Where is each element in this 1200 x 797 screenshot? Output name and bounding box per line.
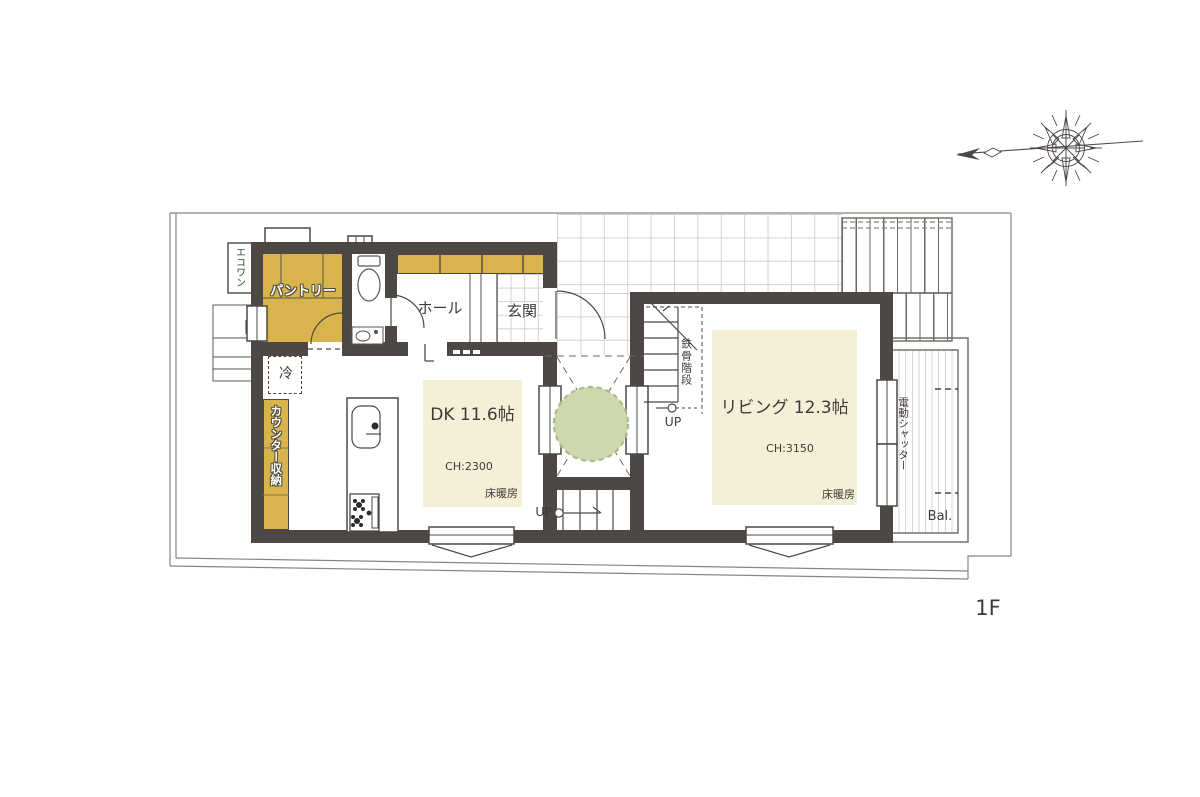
dk-ceiling-height: CH:2300 [423, 461, 515, 474]
kitchen-stove [350, 494, 379, 531]
compass-rose [956, 110, 1143, 186]
kitchen-faucet [372, 423, 379, 430]
floor-label: 1F [968, 596, 1008, 620]
plan-linework [0, 0, 1200, 797]
toilet-fixture [358, 256, 380, 301]
washbasin [352, 327, 383, 344]
eco-one-label: エコワン [233, 247, 245, 291]
window-bays [432, 545, 830, 557]
living-floor-heating-label: 床暖房 [795, 489, 855, 502]
roof-bump [265, 228, 310, 244]
floor-plan-1f: パントリー ホール 玄関 DK 11.6帖 CH:2300 床暖房 リビング 1… [0, 0, 1200, 797]
steel-stairs-label: 鉄骨階段 [679, 338, 692, 418]
electric-shutter-label: 電動シャッター [897, 397, 909, 489]
living-ceiling-height: CH:3150 [744, 443, 836, 456]
counter-storage-label: カウンター収納 [269, 405, 282, 529]
compass-arrow-west [956, 148, 980, 160]
entry-steps [555, 490, 613, 530]
pantry-door-arc [311, 313, 342, 344]
dk-label: DK 11.6帖 [423, 406, 522, 426]
stairs-up-label: UP [659, 415, 687, 429]
entrance-door-arc [557, 291, 605, 339]
entrance-label: 玄関 [499, 303, 545, 320]
entry-steps-up-label: UP [524, 505, 552, 519]
steel-staircase [644, 300, 702, 414]
compass-spokes [1030, 110, 1102, 186]
pantry-label: パントリー [262, 285, 344, 300]
courtyard-tree [554, 387, 628, 461]
kitchen-island [347, 398, 398, 532]
refrigerator-box [268, 356, 302, 394]
hall-label: ホール [413, 300, 467, 317]
balcony-label: Bal. [922, 510, 958, 525]
dk-floor-heating-label: 床暖房 [458, 488, 518, 501]
deck-frames [842, 218, 952, 341]
living-label: リビング 12.3帖 [712, 399, 857, 419]
